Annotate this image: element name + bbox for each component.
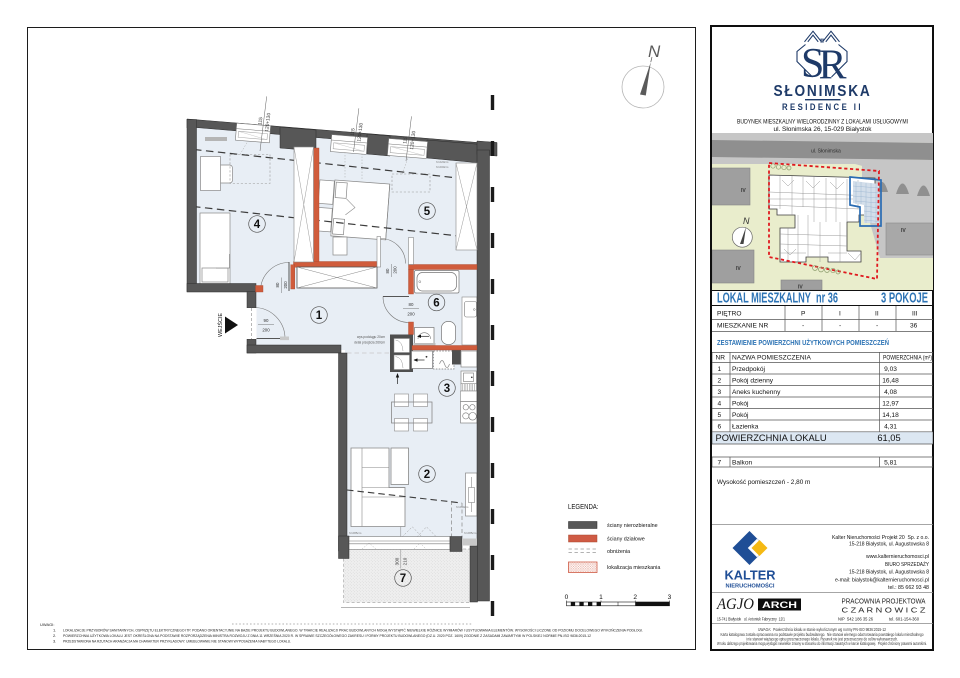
svg-text:15-218 Białystok, ul. Augustow: 15-218 Białystok, ul. Augustowska 8: [849, 542, 929, 548]
svg-text:KALTER: KALTER: [725, 569, 776, 583]
svg-text:P: P: [801, 310, 806, 317]
svg-text:II: II: [875, 310, 879, 317]
svg-text:LEGENDA:: LEGENDA:: [568, 502, 599, 511]
svg-text:Pokój: Pokój: [732, 400, 749, 407]
svg-text:www.kalternieruchomosci.pl: www.kalternieruchomosci.pl: [865, 554, 929, 560]
svg-text:SŁONIMSKA: SŁONIMSKA: [774, 83, 872, 100]
svg-text:MIESZKANIE NR: MIESZKANIE NR: [717, 322, 769, 329]
svg-text:90: 90: [264, 318, 269, 323]
svg-text:AGJO: AGJO: [716, 596, 754, 613]
svg-text:1: 1: [599, 594, 603, 601]
svg-text:14,18: 14,18: [882, 412, 899, 419]
svg-text:15-218 Białystok, ul. Augustow: 15-218 Białystok, ul. Augustowska 8: [849, 570, 929, 576]
svg-text:-: -: [802, 322, 804, 329]
svg-text:5,81: 5,81: [884, 459, 897, 466]
svg-text:tel. 601-154-360: tel. 601-154-360: [889, 617, 919, 622]
svg-text:1: 1: [718, 366, 722, 373]
svg-text:3: 3: [718, 389, 722, 396]
svg-text:2: 2: [633, 594, 637, 601]
svg-text:200: 200: [262, 328, 270, 333]
svg-text:200: 200: [393, 266, 398, 274]
svg-text:1.: 1.: [53, 628, 56, 633]
svg-text:61,05: 61,05: [877, 433, 900, 443]
svg-text:PIĘTRO: PIĘTRO: [717, 310, 742, 317]
svg-text:obniżenia: obniżenia: [607, 549, 630, 555]
svg-text:Przedpokój: Przedpokój: [732, 366, 766, 373]
svg-text:NAZWA POMIESZCZENIA: NAZWA POMIESZCZENIA: [732, 355, 811, 362]
svg-text:3: 3: [668, 594, 672, 601]
svg-text:ZESTAWIENIE POWIERZCHNI UŻYTKO: ZESTAWIENIE POWIERZCHNI UŻYTKOWYCH POMIE…: [717, 338, 889, 347]
svg-text:LOKAL MIESZKALNY nr 36: LOKAL MIESZKALNY nr 36: [717, 291, 838, 306]
svg-text:210: 210: [403, 557, 408, 565]
svg-text:Wysokość pomieszczeń - 2,80 m: Wysokość pomieszczeń - 2,80 m: [717, 479, 810, 486]
svg-text:POWIERZCHNIA UŻYTKOWA LOKALU J: POWIERZCHNIA UŻYTKOWA LOKALU JEST OKREŚL…: [63, 633, 592, 638]
svg-text:200: 200: [283, 281, 288, 289]
svg-text:N: N: [743, 216, 750, 226]
svg-text:N: N: [648, 42, 661, 61]
svg-text:IV: IV: [901, 228, 906, 234]
svg-text:115: 115: [402, 136, 409, 145]
svg-text:2: 2: [424, 469, 430, 481]
svg-text:BUDYNEK MIESZKALNY WIELORODZIN: BUDYNEK MIESZKALNY WIELORODZINNY Z LOKAL…: [737, 119, 908, 126]
svg-text:III: III: [912, 310, 918, 317]
svg-text:lokalizacja mieszkania: lokalizacja mieszkania: [607, 565, 660, 571]
svg-text:4,08: 4,08: [884, 389, 897, 396]
svg-text:6: 6: [718, 423, 722, 430]
svg-text:h=285cm: h=285cm: [464, 531, 477, 535]
svg-text:R: R: [819, 43, 847, 84]
svg-text:POWIERZCHNIA (m²): POWIERZCHNIA (m²): [883, 355, 932, 362]
svg-text:IV: IV: [736, 266, 741, 272]
svg-text:7: 7: [400, 573, 406, 585]
svg-text:5: 5: [718, 412, 722, 419]
svg-text:Balkon: Balkon: [732, 459, 752, 466]
svg-text:80: 80: [275, 282, 280, 287]
svg-text:h=200cm: h=200cm: [436, 165, 449, 169]
svg-text:wys.podciągu 20cm: wys.podciągu 20cm: [357, 335, 385, 339]
svg-text:ściany działowe: ściany działowe: [607, 537, 645, 543]
svg-text:NR: NR: [716, 355, 726, 362]
svg-text:Pokój: Pokój: [732, 412, 749, 419]
svg-text:200: 200: [407, 312, 415, 317]
svg-text:3 POKOJE: 3 POKOJE: [881, 291, 928, 306]
svg-text:NIP 542 186 35 26: NIP 542 186 35 26: [838, 617, 873, 622]
svg-text:NIERUCHOMOŚCI: NIERUCHOMOŚCI: [726, 583, 776, 590]
svg-text:7: 7: [718, 459, 722, 466]
svg-text:WEJŚCIE: WEJŚCIE: [216, 313, 224, 337]
svg-text:POWIERZCHNIA LOKALU: POWIERZCHNIA LOKALU: [716, 433, 827, 443]
svg-text:UWAGI:: UWAGI:: [40, 622, 55, 627]
svg-text:4: 4: [254, 219, 261, 231]
svg-text:e-mail: bialystok@kalternieruc: e-mail: bialystok@kalternieruchomosci.pl: [835, 578, 929, 584]
svg-text:-: -: [876, 322, 878, 329]
svg-text:Kalter Nieruchomości Projekt 2: Kalter Nieruchomości Projekt 20 Sp. z o.…: [832, 535, 929, 541]
svg-text:W toku dalszego projektowania: W toku dalszego projektowania mogą wystą…: [717, 641, 927, 646]
svg-text:115: 115: [350, 127, 357, 136]
svg-text:0: 0: [565, 594, 569, 601]
svg-text:h=220cm: h=220cm: [436, 160, 449, 164]
svg-text:h=285cm: h=285cm: [349, 531, 362, 535]
svg-text:15-741 Białystok ul. Antoniu: 15-741 Białystok ul. Antoniuk Fabryczny …: [717, 617, 785, 622]
svg-text:ul. Słonimska 26, 15-029 Biały: ul. Słonimska 26, 15-029 Białystok: [774, 126, 873, 133]
svg-text:80: 80: [385, 268, 390, 273]
svg-text:detal przejścia 260cm: detal przejścia 260cm: [354, 341, 385, 345]
svg-text:3.: 3.: [53, 639, 56, 644]
svg-text:IV: IV: [741, 188, 746, 194]
svg-text:tel.: 85 662 93 48: tel.: 85 662 93 48: [888, 585, 929, 591]
svg-text:Aneks kuchenny: Aneks kuchenny: [732, 389, 781, 396]
svg-text:Łazienka: Łazienka: [732, 423, 759, 430]
svg-text:1: 1: [316, 310, 323, 322]
svg-text:4: 4: [718, 400, 722, 407]
svg-text:6: 6: [433, 298, 439, 310]
svg-text:300: 300: [395, 557, 400, 565]
svg-text:16,48: 16,48: [882, 377, 899, 384]
svg-text:12,97: 12,97: [882, 400, 899, 407]
svg-text:ściany nierozbieralne: ściany nierozbieralne: [607, 523, 658, 529]
svg-text:2.: 2.: [53, 633, 56, 638]
svg-text:Pokój dzienny: Pokój dzienny: [732, 377, 774, 384]
svg-text:LOKALIZACJE PRZYBORÓW SANITARN: LOKALIZACJE PRZYBORÓW SANITARNYCH, OSPRZ…: [63, 628, 643, 633]
svg-text:C Z A R N O W I C Z: C Z A R N O W I C Z: [842, 606, 927, 615]
svg-text:-: -: [839, 322, 841, 329]
svg-text:ARCH: ARCH: [762, 600, 797, 611]
svg-text:2: 2: [718, 377, 722, 384]
svg-text:ul. Słonimska: ul. Słonimska: [811, 149, 841, 155]
svg-text:115: 115: [257, 117, 264, 126]
svg-text:RESIDENCE II: RESIDENCE II: [782, 102, 863, 113]
svg-text:PRACOWNIA PROJEKTOWA: PRACOWNIA PROJEKTOWA: [842, 599, 926, 606]
svg-text:h=260cm: h=260cm: [456, 505, 469, 509]
svg-text:4,31: 4,31: [884, 423, 897, 430]
svg-text:5: 5: [424, 206, 431, 218]
svg-text:9,03: 9,03: [884, 366, 897, 373]
svg-text:3: 3: [444, 383, 450, 395]
svg-text:80: 80: [409, 302, 414, 307]
svg-text:BIURO SPRZEDAŻY: BIURO SPRZEDAŻY: [885, 561, 929, 568]
svg-text:I: I: [839, 310, 841, 317]
svg-text:36: 36: [910, 322, 918, 329]
svg-text:PRZEDSTAWIONA NA RZUTACH ARANŻ: PRZEDSTAWIONA NA RZUTACH ARANŻACJA MA CH…: [63, 639, 291, 644]
